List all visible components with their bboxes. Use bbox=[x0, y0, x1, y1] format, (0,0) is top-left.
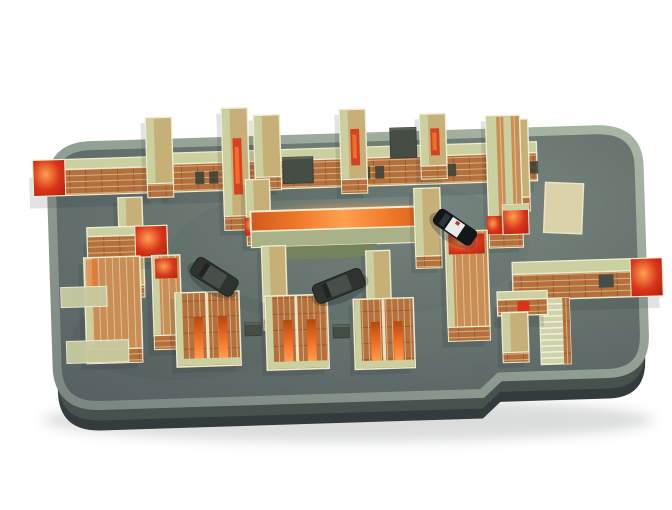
scene-group bbox=[27, 95, 667, 433]
maze-wall-dark bbox=[283, 157, 314, 184]
maze-wall-v bbox=[414, 113, 447, 184]
maze-wall-pale bbox=[66, 340, 129, 364]
maze-wall-block bbox=[260, 294, 329, 376]
maze-wall-dark bbox=[245, 322, 261, 335]
maze-3d-render bbox=[0, 0, 672, 510]
maze-wall-dark bbox=[333, 325, 349, 338]
maze-wall-block bbox=[348, 298, 415, 376]
maze-wall-v bbox=[497, 312, 530, 368]
maze-wall-block bbox=[170, 291, 241, 373]
maze-wall-dark bbox=[390, 127, 417, 158]
maze-level-screenshot: 3D isometric render of a maze game level… bbox=[0, 0, 672, 510]
maze-wall-v bbox=[334, 109, 368, 199]
maze-wall-v bbox=[140, 117, 174, 203]
maze-wall-ramp bbox=[542, 181, 585, 235]
maze-wall-pale bbox=[61, 286, 108, 307]
maze-wall-redblock bbox=[502, 204, 529, 235]
